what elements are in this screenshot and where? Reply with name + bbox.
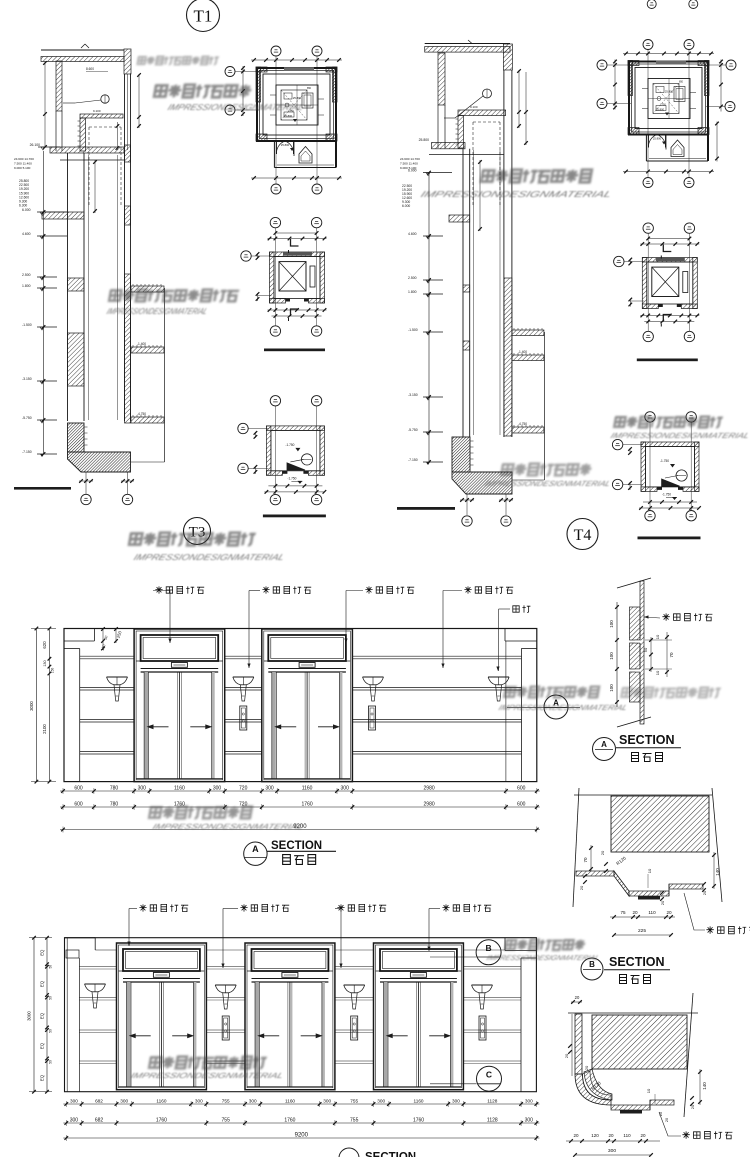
svg-text:300: 300 — [249, 1098, 257, 1103]
svg-text:25.800: 25.800 — [653, 137, 662, 141]
svg-text:1760: 1760 — [156, 1117, 167, 1123]
svg-text:1160: 1160 — [413, 1098, 423, 1103]
svg-text:-3.150: -3.150 — [408, 393, 418, 397]
svg-text:7.500 11.400: 7.500 11.400 — [400, 162, 418, 166]
svg-text:300: 300 — [120, 1098, 128, 1103]
svg-text:755: 755 — [222, 1117, 231, 1123]
svg-text:100: 100 — [609, 684, 614, 692]
svg-text:IMPRESSIONDESIGNMATERIAL: IMPRESSIONDESIGNMATERIAL — [485, 953, 601, 962]
svg-text:1160: 1160 — [156, 1098, 166, 1103]
svg-text:25.800: 25.800 — [656, 108, 665, 112]
svg-text:-3.150: -3.150 — [22, 377, 32, 381]
svg-text:IMPRESSIONDESIGNMATERIAL: IMPRESSIONDESIGNMATERIAL — [105, 306, 209, 316]
svg-text:1760: 1760 — [284, 1117, 295, 1123]
svg-text:780: 780 — [110, 801, 119, 807]
svg-text:EQ: EQ — [40, 980, 45, 987]
svg-text:-5.750: -5.750 — [22, 416, 32, 420]
svg-text:6.000: 6.000 — [22, 208, 31, 212]
svg-text:3000: 3000 — [29, 701, 34, 711]
svg-text:110: 110 — [623, 1133, 631, 1138]
svg-text:1128: 1128 — [487, 1098, 497, 1103]
svg-text:300: 300 — [377, 1098, 385, 1103]
svg-text:300: 300 — [70, 1117, 79, 1123]
svg-text:50: 50 — [49, 1060, 53, 1064]
svg-text:300: 300 — [213, 785, 222, 791]
svg-text:-5.750: -5.750 — [408, 428, 418, 432]
svg-text:300: 300 — [323, 1098, 331, 1103]
svg-text:-1.750: -1.750 — [285, 443, 294, 447]
svg-text:IMPRESSIONDESIGNMATERIAL: IMPRESSIONDESIGNMATERIAL — [419, 189, 613, 199]
svg-text:SECTION: SECTION — [609, 955, 665, 969]
svg-text:-1.500: -1.500 — [408, 328, 418, 332]
svg-text:4.600: 4.600 — [22, 232, 31, 236]
svg-text:2.500: 2.500 — [22, 273, 31, 277]
svg-text:IMPRESSIONDESIGNMATERIAL: IMPRESSIONDESIGNMATERIAL — [609, 431, 750, 440]
svg-text:20: 20 — [579, 885, 584, 890]
svg-text:25.800: 25.800 — [281, 143, 290, 147]
svg-text:SECTION: SECTION — [271, 840, 322, 852]
svg-text:24.600 14.700: 24.600 14.700 — [400, 157, 420, 161]
svg-text:IMPRESSIONDESIGNMATERIAL: IMPRESSIONDESIGNMATERIAL — [497, 703, 629, 712]
svg-text:600: 600 — [517, 801, 526, 807]
svg-text:IMPRESSIONDESIGNMATERIAL: IMPRESSIONDESIGNMATERIAL — [151, 822, 305, 831]
svg-text:682: 682 — [95, 1098, 103, 1103]
svg-text:130: 130 — [43, 660, 47, 666]
svg-text:20: 20 — [665, 1118, 669, 1122]
svg-text:EQ: EQ — [40, 1074, 45, 1081]
svg-text:EQ: EQ — [40, 1042, 45, 1049]
svg-text:100: 100 — [609, 652, 614, 660]
svg-text:25.800: 25.800 — [284, 114, 293, 118]
svg-text:150: 150 — [51, 668, 55, 674]
svg-text:SECTION: SECTION — [619, 733, 675, 747]
svg-text:70: 70 — [583, 857, 588, 863]
svg-text:-7.150: -7.150 — [22, 450, 32, 454]
svg-text:300: 300 — [341, 785, 350, 791]
svg-text:50: 50 — [49, 965, 53, 969]
svg-text:IMPRESSIONDESIGNMATERIAL: IMPRESSIONDESIGNMATERIAL — [132, 552, 286, 562]
svg-text:300: 300 — [452, 1098, 460, 1103]
svg-text:50: 50 — [49, 1029, 53, 1033]
svg-text:20: 20 — [573, 1133, 579, 1138]
svg-text:7.500 11.400: 7.500 11.400 — [14, 162, 32, 166]
svg-text:1128: 1128 — [487, 1117, 498, 1123]
svg-text:IMPRESSIONDESIGNMATERIAL: IMPRESSIONDESIGNMATERIAL — [483, 479, 612, 488]
svg-text:8.600: 8.600 — [86, 67, 94, 71]
svg-text:620: 620 — [42, 641, 47, 649]
svg-text:300: 300 — [608, 1148, 616, 1154]
svg-text:T4: T4 — [574, 527, 592, 544]
svg-text:755: 755 — [350, 1117, 359, 1123]
svg-text:110: 110 — [648, 910, 656, 915]
svg-text:1.800: 1.800 — [22, 284, 31, 288]
svg-text:850: 850 — [307, 87, 312, 90]
svg-text:600: 600 — [517, 785, 526, 791]
svg-text:300: 300 — [70, 1098, 78, 1103]
svg-text:755: 755 — [350, 1098, 358, 1103]
svg-text:24.600 14.700: 24.600 14.700 — [14, 157, 34, 161]
svg-text:A: A — [252, 844, 259, 854]
svg-text:EQ: EQ — [40, 1012, 45, 1019]
svg-text:720: 720 — [239, 785, 248, 791]
svg-text:100: 100 — [609, 620, 614, 628]
svg-text:IMPRESSIONDESIGNMATERIAL: IMPRESSIONDESIGNMATERIAL — [129, 1071, 285, 1080]
svg-text:20: 20 — [575, 995, 580, 1000]
svg-text:140: 140 — [702, 1082, 707, 1090]
svg-text:25.800: 25.800 — [293, 96, 302, 100]
svg-text:2100: 2100 — [42, 724, 47, 734]
svg-text:9.100: 9.100 — [93, 109, 101, 113]
svg-text:780: 780 — [110, 785, 119, 791]
svg-text:9.000 5.100: 9.000 5.100 — [14, 166, 31, 170]
svg-text:C: C — [486, 1069, 492, 1079]
svg-text:6.000: 6.000 — [408, 168, 417, 172]
svg-text:850: 850 — [679, 81, 684, 84]
svg-text:225: 225 — [638, 928, 646, 934]
svg-text:6.000: 6.000 — [402, 204, 410, 208]
svg-text:20: 20 — [640, 1133, 646, 1138]
svg-text:-1.750: -1.750 — [660, 459, 669, 463]
svg-text:300: 300 — [265, 785, 274, 791]
svg-text:-1.750: -1.750 — [662, 493, 671, 497]
svg-text:1750: 1750 — [660, 104, 666, 107]
svg-text:600: 600 — [74, 801, 83, 807]
svg-text:300: 300 — [525, 1098, 533, 1103]
svg-text:10: 10 — [646, 1088, 651, 1093]
svg-text:2.500: 2.500 — [408, 276, 417, 280]
svg-text:-1.750: -1.750 — [287, 476, 296, 480]
svg-text:1760: 1760 — [413, 1117, 424, 1123]
svg-text:75: 75 — [620, 910, 626, 915]
svg-text:20: 20 — [632, 910, 638, 915]
svg-text:T1: T1 — [194, 7, 213, 26]
svg-text:10: 10 — [655, 670, 660, 675]
svg-text:4.600: 4.600 — [408, 232, 417, 236]
svg-text:300: 300 — [195, 1098, 203, 1103]
svg-text:IMPRESSIONDESIGNMATERIAL: IMPRESSIONDESIGNMATERIAL — [166, 102, 305, 112]
svg-text:1760: 1760 — [302, 801, 313, 807]
svg-text:26.100: 26.100 — [30, 143, 40, 147]
svg-text:120: 120 — [591, 1133, 599, 1138]
svg-text:10: 10 — [655, 634, 660, 639]
svg-text:1.800: 1.800 — [408, 290, 417, 294]
svg-text:20: 20 — [608, 1133, 614, 1138]
svg-text:300: 300 — [525, 1117, 534, 1123]
svg-text:70: 70 — [669, 652, 674, 658]
svg-text:755: 755 — [222, 1098, 230, 1103]
svg-text:682: 682 — [95, 1117, 104, 1123]
svg-text:-7.150: -7.150 — [408, 458, 418, 462]
svg-text:50: 50 — [49, 996, 53, 1000]
svg-text:25.800: 25.800 — [665, 90, 674, 94]
svg-text:B: B — [486, 943, 492, 953]
svg-text:20: 20 — [600, 850, 605, 855]
svg-text:2980: 2980 — [424, 785, 435, 791]
svg-text:1160: 1160 — [174, 785, 185, 791]
svg-text:20: 20 — [666, 910, 672, 915]
svg-text:A: A — [601, 740, 607, 749]
svg-text:10: 10 — [647, 868, 652, 873]
svg-text:9200: 9200 — [295, 1132, 309, 1138]
svg-text:SECTION: SECTION — [365, 1152, 416, 1157]
svg-text:EQ: EQ — [40, 949, 45, 956]
svg-text:1160: 1160 — [302, 785, 313, 791]
svg-text:300: 300 — [138, 785, 147, 791]
svg-text:25.800: 25.800 — [419, 138, 429, 142]
svg-text:140: 140 — [715, 868, 720, 876]
svg-text:20: 20 — [584, 1065, 589, 1070]
svg-text:-1.500: -1.500 — [22, 323, 32, 327]
svg-text:2980: 2980 — [424, 801, 435, 807]
svg-text:1160: 1160 — [285, 1098, 295, 1103]
svg-text:600: 600 — [74, 785, 83, 791]
svg-text:50: 50 — [643, 647, 648, 652]
svg-text:3000: 3000 — [27, 1011, 32, 1021]
